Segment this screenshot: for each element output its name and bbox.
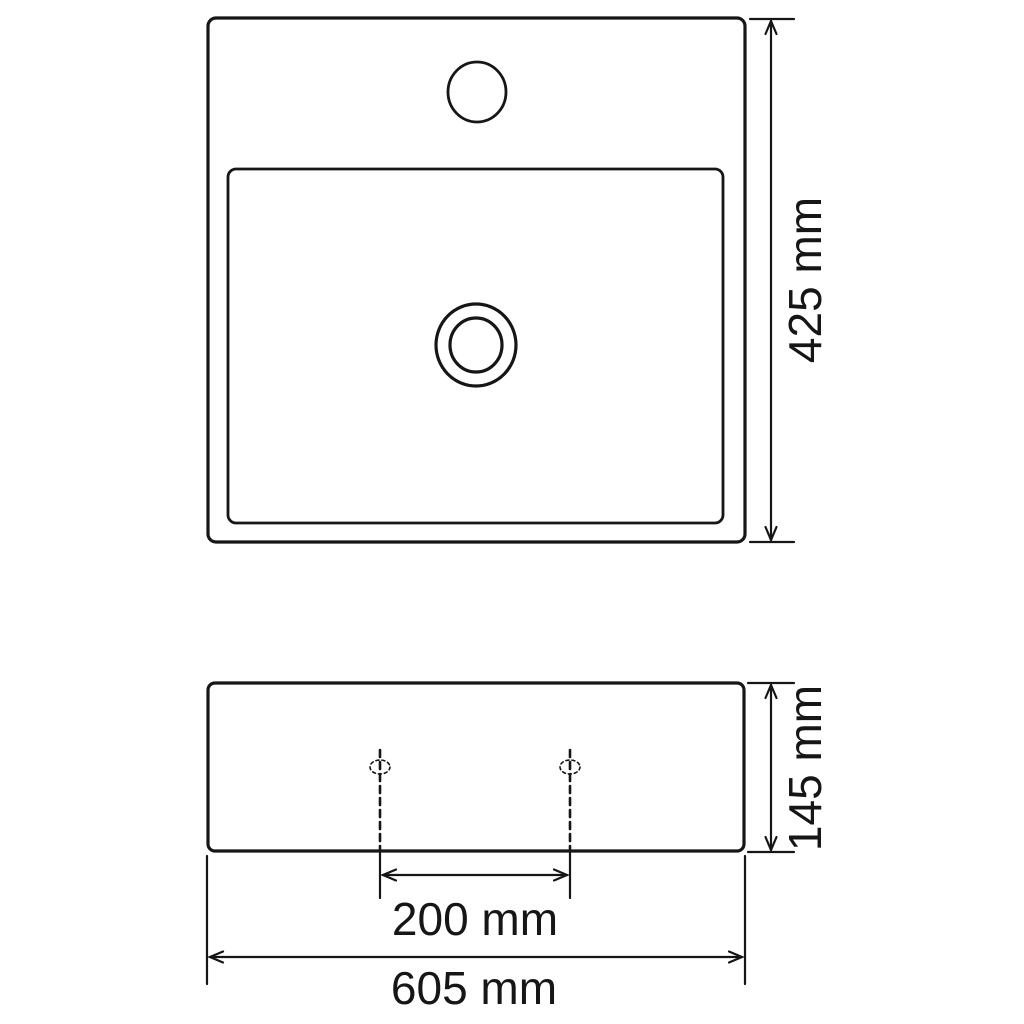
dimension-label-605: 605 mm [391, 962, 557, 1014]
basin-dimension-drawing: 425 mm 200 mm 145 mm [0, 0, 1024, 1024]
dimension-depth-425: 425 mm [750, 19, 831, 542]
dimension-label-200: 200 mm [392, 893, 558, 945]
dimension-height-145: 145 mm [748, 683, 831, 852]
top-view: 425 mm [208, 18, 831, 542]
drain-outer-ring [436, 304, 516, 386]
front-view: 200 mm 145 mm 605 mm [207, 683, 831, 1014]
dimension-label-145: 145 mm [779, 685, 831, 851]
faucet-hole [448, 62, 506, 122]
dimension-hole-spacing-200: 200 mm [380, 853, 570, 945]
basin-inner-rim [228, 169, 723, 523]
top-view-outer-rim [208, 18, 745, 542]
front-view-body [208, 683, 744, 851]
drain-inner-ring [450, 318, 502, 372]
dimension-label-425: 425 mm [779, 197, 831, 363]
technical-drawing-canvas: 425 mm 200 mm 145 mm [0, 0, 1024, 1024]
